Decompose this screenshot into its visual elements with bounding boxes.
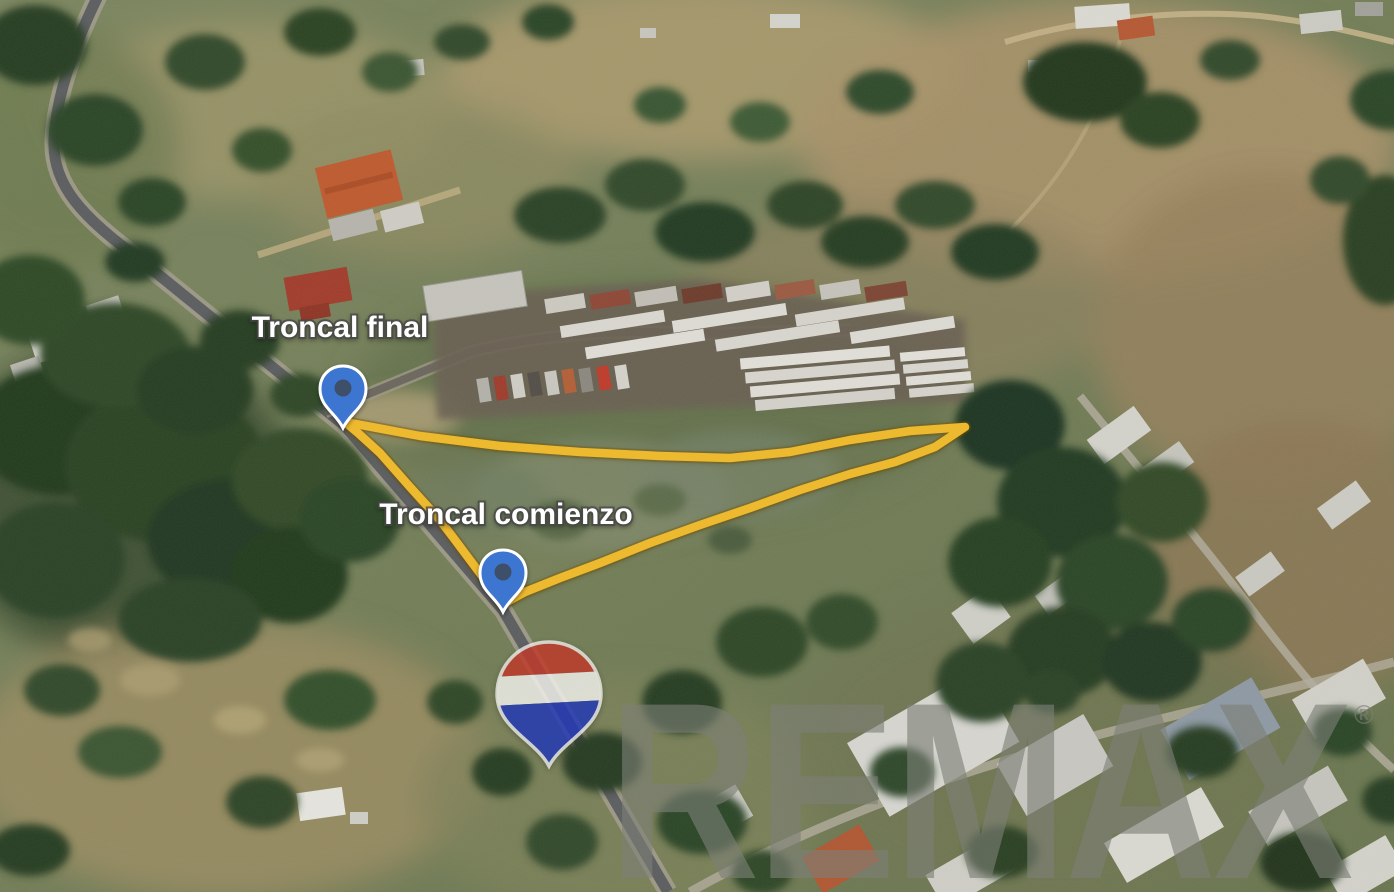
label-troncal-final: Troncal final [252,311,429,344]
remax-watermark: REMAX ® [486,631,1374,892]
aerial-map-canvas: Troncal final Troncal comienzo REMAX ® [0,0,1394,892]
registered-trademark-symbol: ® [1354,700,1374,730]
remax-watermark-text: REMAX [608,651,1352,892]
label-troncal-comienzo: Troncal comienzo [379,498,632,531]
aerial-map: Troncal final Troncal comienzo REMAX ® [0,0,1394,892]
